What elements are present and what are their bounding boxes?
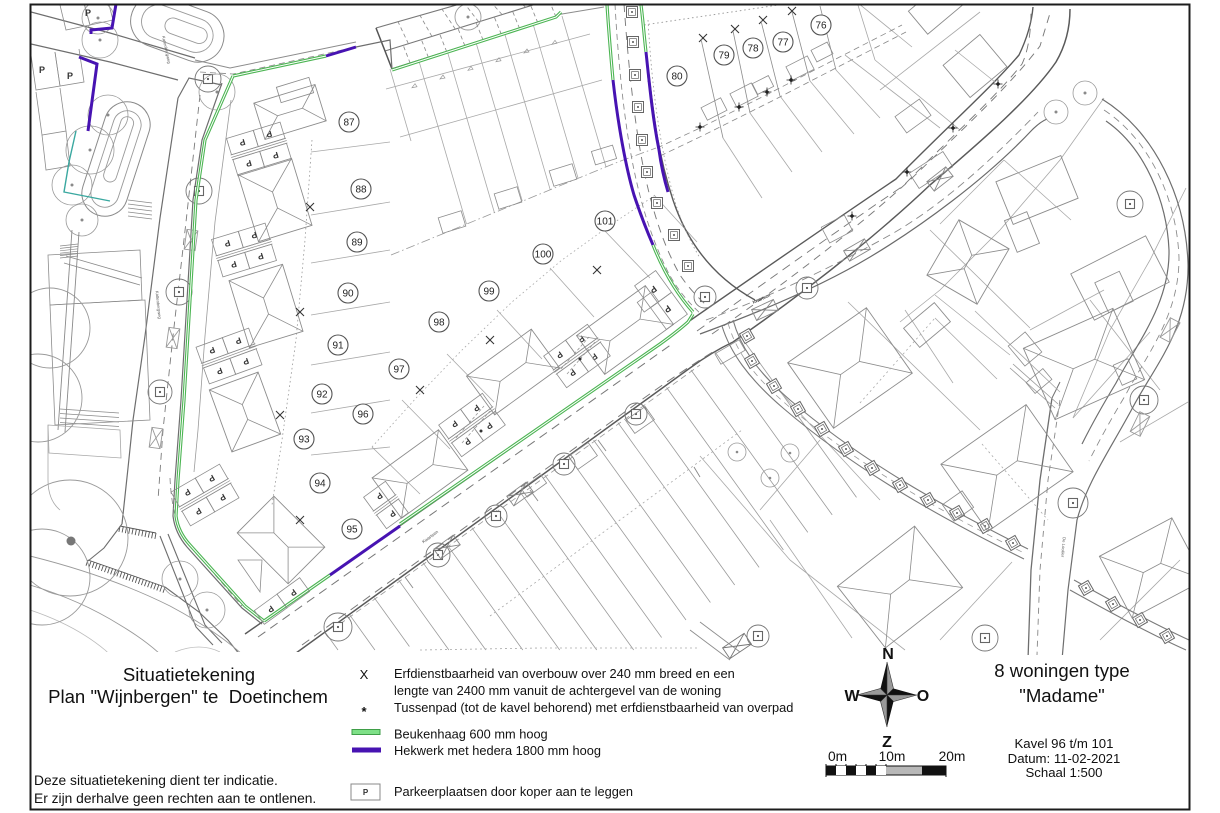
svg-text:O: O: [917, 688, 929, 705]
svg-text:Plan "Wijnbergen" te Doetinch: Plan "Wijnbergen" te Doetinchem: [48, 686, 328, 707]
svg-text:W: W: [844, 688, 860, 705]
svg-text:Situatietekening: Situatietekening: [123, 664, 255, 685]
svg-text:96: 96: [357, 409, 369, 420]
svg-text:N: N: [882, 646, 894, 663]
svg-text:20m: 20m: [939, 749, 966, 764]
svg-text:10m: 10m: [879, 749, 906, 764]
svg-text:Er zijn derhalve geen rechten: Er zijn derhalve geen rechten aan te ont…: [34, 791, 316, 806]
svg-text:lengte van 2400 mm vanuit de a: lengte van 2400 mm vanuit de achtergevel…: [394, 683, 721, 698]
svg-text:99: 99: [483, 286, 495, 297]
svg-text:Datum: 11-02-2021: Datum: 11-02-2021: [1008, 751, 1121, 766]
svg-text:98: 98: [433, 317, 445, 328]
svg-text:Beukenhaag 600 mm hoog: Beukenhaag 600 mm hoog: [394, 727, 548, 742]
svg-text:"Madame": "Madame": [1019, 685, 1105, 706]
svg-text:Deze situatietekening dient te: Deze situatietekening dient ter indicati…: [34, 773, 278, 788]
svg-text:77: 77: [777, 37, 789, 48]
svg-text:88: 88: [355, 184, 367, 195]
svg-text:95: 95: [346, 524, 358, 535]
svg-text:Parkeerplaatsen door koper aan: Parkeerplaatsen door koper aan te leggen: [394, 784, 633, 799]
svg-text:X: X: [360, 667, 369, 682]
svg-text:89: 89: [351, 237, 363, 248]
svg-text:93: 93: [298, 434, 310, 445]
svg-text:P: P: [39, 65, 45, 75]
svg-text:8 woningen type: 8 woningen type: [994, 660, 1129, 681]
svg-text:97: 97: [393, 364, 405, 375]
svg-text:Erfdienstbaarheid van overbouw: Erfdienstbaarheid van overbouw over 240 …: [394, 666, 735, 681]
svg-text:94: 94: [314, 478, 326, 489]
svg-text:78: 78: [747, 43, 759, 54]
svg-text:100: 100: [535, 249, 552, 260]
svg-text:87: 87: [343, 117, 355, 128]
svg-text:90: 90: [342, 288, 354, 299]
svg-text:Schaal 1:500: Schaal 1:500: [1026, 765, 1103, 780]
svg-text:P: P: [85, 8, 91, 18]
svg-text:Tussenpad (tot de kavel behor: Tussenpad (tot de kavel behorend) met er…: [394, 700, 793, 715]
svg-text:P: P: [363, 788, 369, 797]
svg-text:Hekwerk met hedera 1800 mm hoo: Hekwerk met hedera 1800 mm hoog: [394, 743, 601, 758]
svg-text:76: 76: [815, 20, 827, 31]
svg-text:Kavel 96 t/m 101: Kavel 96 t/m 101: [1015, 736, 1114, 751]
svg-text:80: 80: [671, 71, 683, 82]
svg-text:92: 92: [316, 389, 328, 400]
svg-text:101: 101: [597, 216, 614, 227]
svg-text:79: 79: [718, 50, 730, 61]
svg-text:0m: 0m: [828, 749, 847, 764]
svg-text:91: 91: [332, 340, 344, 351]
svg-text:P: P: [67, 71, 73, 81]
